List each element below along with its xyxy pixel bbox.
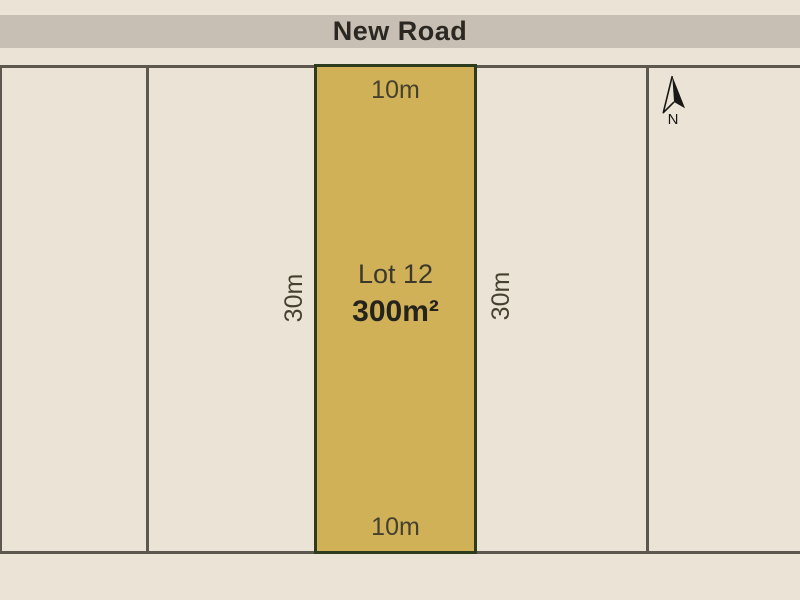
lot-depth-right-label: 30m xyxy=(486,264,516,328)
lot-12-parcel: 10m Lot 12 300m² 10m xyxy=(314,64,477,554)
boundary-line-left-edge xyxy=(0,65,2,554)
lot-divider-left xyxy=(146,65,149,554)
north-label: N xyxy=(660,111,686,128)
lot-name-label: Lot 12 xyxy=(317,259,474,290)
site-plan: New Road 10m Lot 12 300m² 10m 30m 30m N xyxy=(0,0,800,600)
road-name-label: New Road xyxy=(333,16,468,47)
north-arrow-icon xyxy=(656,74,692,114)
road-band: New Road xyxy=(0,15,800,48)
lot-frontage-bottom-label: 10m xyxy=(317,513,474,542)
lot-divider-right xyxy=(646,65,649,554)
lot-depth-left-label: 30m xyxy=(279,266,309,330)
lot-frontage-top-label: 10m xyxy=(317,76,474,105)
lot-area-label: 300m² xyxy=(317,295,474,329)
north-arrow: N xyxy=(656,74,692,130)
